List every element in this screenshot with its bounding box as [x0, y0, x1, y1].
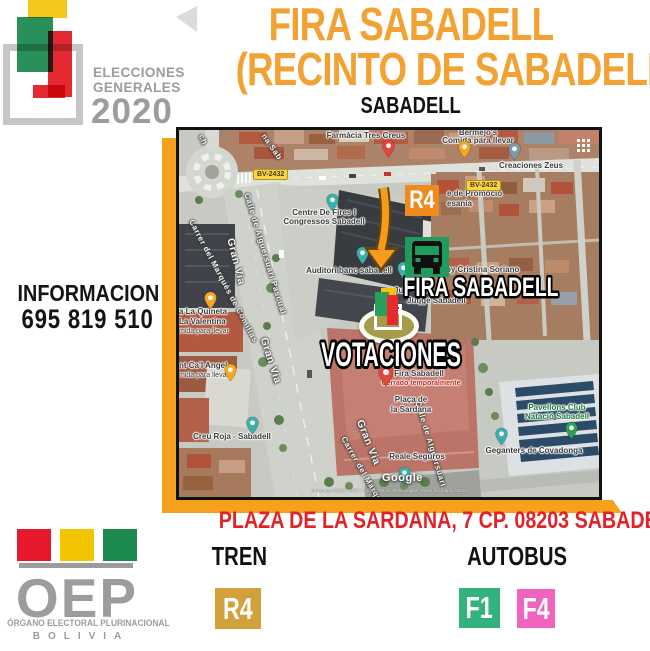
oep-country: BOLIVIA	[1, 631, 153, 642]
poi-reale: Reale Seguros	[389, 453, 445, 462]
grid-dots-icon	[577, 139, 591, 153]
information-phone: 695 819 510	[22, 305, 154, 333]
information-block: INFORMACION 695 819 510	[0, 281, 176, 333]
poi-angel-2: mida para llevar	[179, 372, 229, 380]
title-city: SABADELL	[361, 94, 461, 116]
pin-centre-fires	[326, 193, 339, 212]
election-flyer: ELECCIONES GENERALES 2020 FIRA SABADELL …	[0, 0, 650, 651]
poi-fira-place: Fira Sabadell	[394, 370, 444, 379]
poi-quineta-3: mida para llevar	[179, 328, 229, 336]
mini-red-square	[387, 295, 398, 325]
map-attribution: Imágenes ©2020 CNES / Airbus, Maxar Tech…	[179, 488, 599, 493]
poi-quineta-1: a La Quineta	[179, 308, 227, 317]
poi-promocio-1: e de Promoció	[447, 190, 502, 199]
poi-creaciones: Creaciones Zeus	[499, 162, 563, 171]
poi-auditori: Auditori banc sabadell	[306, 267, 392, 276]
pin-creaciones-zeus	[508, 142, 521, 161]
elections-2020-logo: ELECCIONES GENERALES 2020	[0, 0, 186, 130]
pin-auditori	[356, 246, 369, 265]
google-watermark: Google	[382, 472, 423, 484]
poi-bermejos-2: Comida para llevar	[442, 137, 514, 146]
bus-badge-f4: F4	[517, 589, 555, 628]
poi-cristina: by Cristina Soriano	[446, 266, 519, 275]
pin-pavellons	[565, 421, 578, 440]
bus-badge-f1: F1	[459, 588, 500, 628]
poi-geganters: Geganters de Covadonga	[486, 447, 583, 456]
logo-yellow-square	[28, 0, 67, 18]
pin-fira-sabadell	[378, 364, 394, 387]
tren-label: TREN	[211, 541, 266, 572]
train-badge-r4: R4	[215, 588, 261, 629]
information-label: INFORMACION	[17, 281, 159, 305]
poi-jutjats: Jutjge Sabadell	[407, 297, 466, 306]
poi-placa-2: la Sardana	[391, 406, 431, 415]
address-line: PLAZA DE LA SARDANA, 7 CP. 08203 SABADEL…	[219, 507, 650, 535]
restaurant-pin-bermejos	[458, 140, 471, 159]
elections-word: ELECCIONES	[93, 66, 185, 81]
poi-quineta-2: La Valentina	[179, 318, 226, 327]
page-title: FIRA SABADELL (RECINTO DE SABADELL) SABA…	[180, 2, 642, 117]
restaurant-pin-angel	[224, 363, 237, 382]
pin-creu-roja	[246, 416, 259, 435]
elections-logo-text: ELECCIONES GENERALES	[93, 66, 185, 95]
map-train-badge-r4: R4	[405, 185, 439, 216]
poi-promocio-2: esania	[447, 200, 472, 209]
oep-subtitle: ÓRGANO ELECTORAL PLURINACIONAL	[1, 618, 153, 628]
logo-red-square-2	[33, 85, 65, 98]
poi-centre-2: Congressos Sabadell	[283, 218, 364, 227]
poi-placa-1: Plaça de	[395, 396, 427, 405]
autobus-label: AUTOBUS	[467, 541, 567, 572]
oep-red-square	[17, 529, 51, 561]
elections-year: 2020	[91, 92, 173, 132]
road-badge-bv2432-left: BV-2432	[253, 169, 288, 180]
votaciones-marker-logo	[372, 288, 406, 334]
map-satellite-view: BV-2432 BV-2432 ch na Sab Calle de Algue…	[176, 127, 602, 500]
poi-angel-1: nt Ca'l Angel	[179, 362, 227, 371]
poi-pavellons-2: Natació Sabadell	[525, 413, 589, 422]
orange-frame-left	[162, 138, 176, 512]
oep-green-square	[103, 529, 137, 561]
oep-yellow-square	[60, 529, 94, 561]
road-badge-bv2432-right: BV-2432	[466, 180, 501, 191]
poi-creu-roja: Creu Roja - Sabadell	[193, 433, 271, 442]
title-line-1: FIRA SABADELL	[269, 2, 554, 47]
bus-icon	[405, 237, 449, 277]
pin-geganters	[495, 427, 508, 446]
restaurant-pin-quineta	[204, 291, 217, 310]
title-line-2: (RECINTO DE SABADELL)	[236, 47, 650, 92]
